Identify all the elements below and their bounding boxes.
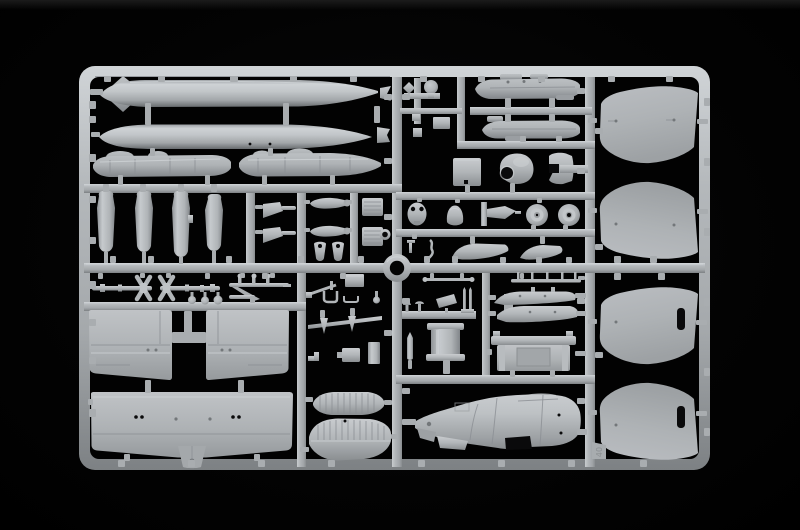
knob-trio bbox=[188, 292, 223, 305]
radiator-core-small bbox=[313, 392, 384, 415]
engine-cowling bbox=[500, 154, 534, 185]
louvre-stack-2 bbox=[362, 227, 383, 246]
drop-tank bbox=[99, 125, 372, 150]
wheel-2 bbox=[558, 204, 580, 226]
access-panel-plate bbox=[453, 158, 481, 186]
wheel-1 bbox=[526, 204, 548, 226]
ring-grommet bbox=[380, 229, 391, 240]
instrument-oval bbox=[408, 203, 427, 226]
cylinder-drum bbox=[426, 323, 465, 361]
louvre-stack-1 bbox=[362, 198, 383, 216]
sprue-hub-ring bbox=[383, 254, 411, 282]
equipment-pallet bbox=[491, 331, 576, 371]
upper-wing-half-left bbox=[89, 310, 172, 380]
photo-edge-sheen bbox=[0, 0, 800, 10]
outer-wing-panel-3 bbox=[600, 287, 698, 364]
outer-wing-panel-2 bbox=[600, 182, 698, 259]
sprue-illustration: plastic model kit parts frame (sprue) wi… bbox=[0, 0, 800, 530]
upper-wing-half-right bbox=[206, 310, 289, 380]
radiator-core-large bbox=[309, 419, 391, 461]
stores-box bbox=[345, 274, 364, 287]
molded-number-text: 40 bbox=[595, 447, 604, 457]
vertical-plate bbox=[368, 342, 380, 364]
sprue-photo: Light grey injection-molded model aircra… bbox=[0, 0, 800, 530]
outer-wing-panel-4 bbox=[600, 383, 698, 460]
outer-wing-panel-1 bbox=[600, 86, 698, 163]
